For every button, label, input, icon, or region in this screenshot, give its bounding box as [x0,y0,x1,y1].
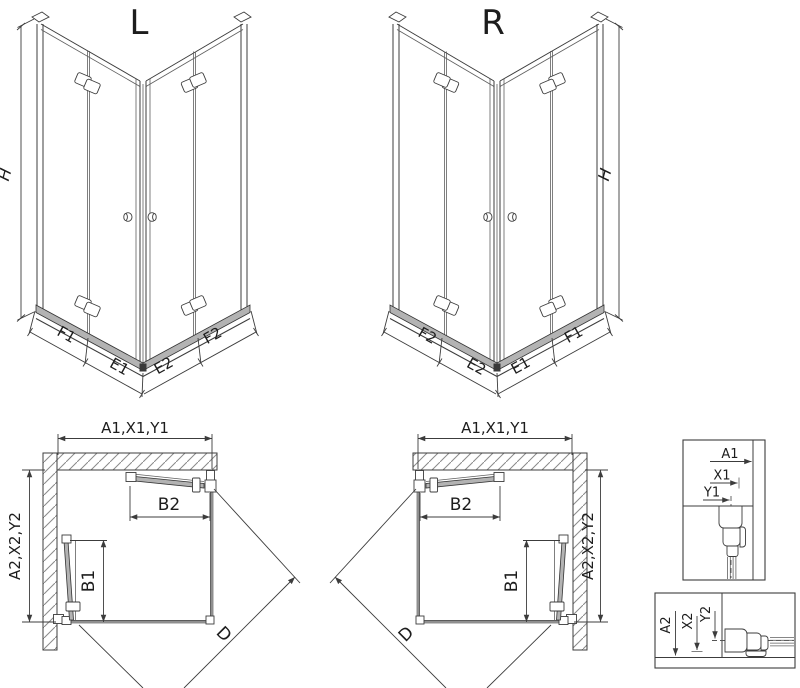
shower-enclosure-diagram: L R H H F1 E1 E2 F2 F2 E2 E1 F1 A1,X1,Y1… [0,0,800,688]
detail-top-y1-label: Y1 [703,486,720,501]
iso-left-title: L [130,3,149,43]
detail-bottom-y2-label: Y2 [699,606,714,623]
plan-right-b1-label: B1 [502,570,522,592]
plan-right-width-label: A1,X1,Y1 [461,419,529,437]
plan-left-depth-label: A2,X2,Y2 [6,512,24,580]
technical-drawing-sheet: L R H H F1 E1 E2 F2 F2 E2 E1 F1 A1,X1,Y1… [0,0,800,688]
plan-view-right-art [330,434,608,688]
wall-profile-detail-bottom: A2 X2 Y2 [655,593,795,668]
plan-left-b2-label: B2 [158,495,180,515]
plan-left-diagonal-label: D [212,623,235,646]
detail-bottom-x2-label: X2 [681,612,696,629]
plan-right-b2-label: B2 [450,495,472,515]
iso-right-title: R [481,3,505,43]
plan-view-left-art [22,434,300,688]
glass-section-lines [728,557,736,579]
plan-left-width-label: A1,X1,Y1 [101,419,169,437]
plan-right-depth-label: A2,X2,Y2 [579,512,597,580]
plan-right-diagonal-label: D [395,623,418,646]
glass-section-lines [770,638,794,646]
detail-bottom-a2-label: A2 [659,616,674,633]
detail-top-x1-label: X1 [713,469,730,484]
plan-left-b1-label: B1 [79,570,99,592]
dim-label-height-left: H [0,166,15,183]
detail-top-a1-label: A1 [721,447,738,462]
plan-left-top-wall [43,453,217,470]
plan-right-top-wall [413,453,587,470]
wall-profile-detail-top: A1 X1 Y1 [683,440,765,580]
